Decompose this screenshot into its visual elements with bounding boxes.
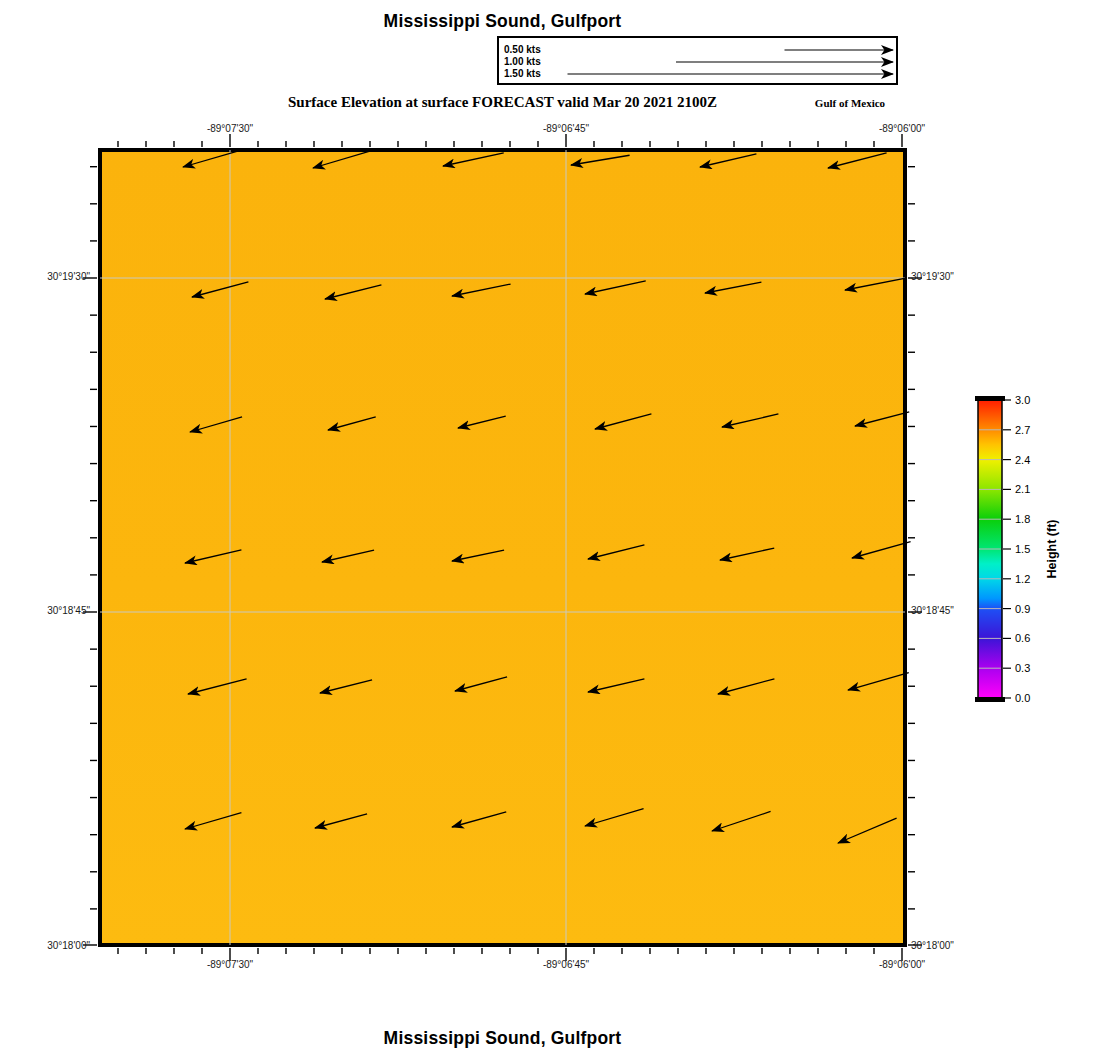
colorbar-tick-label: 3.0 (1015, 394, 1049, 406)
colorbar-tick-label: 2.1 (1015, 483, 1049, 495)
y-axis-left-label: 30°18'45" (4, 605, 90, 616)
legend-label-050: 0.50 kts (504, 44, 541, 55)
region-label: Gulf of Mexico (790, 97, 910, 109)
colorbar-tick-label: 0.3 (1015, 662, 1049, 674)
colorbar-tick-label: 2.4 (1015, 454, 1049, 466)
page-title: Mississippi Sound, Gulfport (100, 11, 905, 32)
legend-label-150: 1.50 kts (504, 68, 541, 79)
plot-canvas (0, 0, 1100, 1050)
current-speed-legend (497, 36, 898, 85)
y-axis-left-label: 30°18'00" (4, 940, 90, 951)
x-axis-top-label: -89°06'45" (496, 123, 636, 134)
y-axis-left-label: 30°19'30" (4, 271, 90, 282)
colorbar-title: Height (ft) (1045, 519, 1059, 578)
colorbar-tick-label: 1.2 (1015, 573, 1049, 585)
colorbar-tick-label: 1.5 (1015, 543, 1049, 555)
x-axis-bottom-label: -89°06'00" (832, 959, 972, 970)
colorbar-tick-label: 2.7 (1015, 424, 1049, 436)
y-axis-right-label: 30°18'45" (911, 605, 997, 616)
footer-title: Mississippi Sound, Gulfport (100, 1028, 905, 1049)
forecast-figure: Mississippi Sound, Gulfport 0.50 kts 1.0… (0, 0, 1100, 1050)
legend-label-100: 1.00 kts (504, 56, 541, 67)
y-axis-right-label: 30°19'30" (911, 271, 997, 282)
colorbar-tick-label: 0.0 (1015, 692, 1049, 704)
x-axis-top-label: -89°06'00" (832, 123, 972, 134)
colorbar-tick-label: 1.8 (1015, 513, 1049, 525)
x-axis-top-label: -89°07'30" (160, 123, 300, 134)
colorbar-tick-label: 0.6 (1015, 632, 1049, 644)
x-axis-bottom-label: -89°06'45" (496, 959, 636, 970)
colorbar-tick-label: 0.9 (1015, 603, 1049, 615)
x-axis-bottom-label: -89°07'30" (160, 959, 300, 970)
plot-subtitle: Surface Elevation at surface FORECAST va… (100, 94, 905, 111)
y-axis-right-label: 30°18'00" (911, 940, 997, 951)
